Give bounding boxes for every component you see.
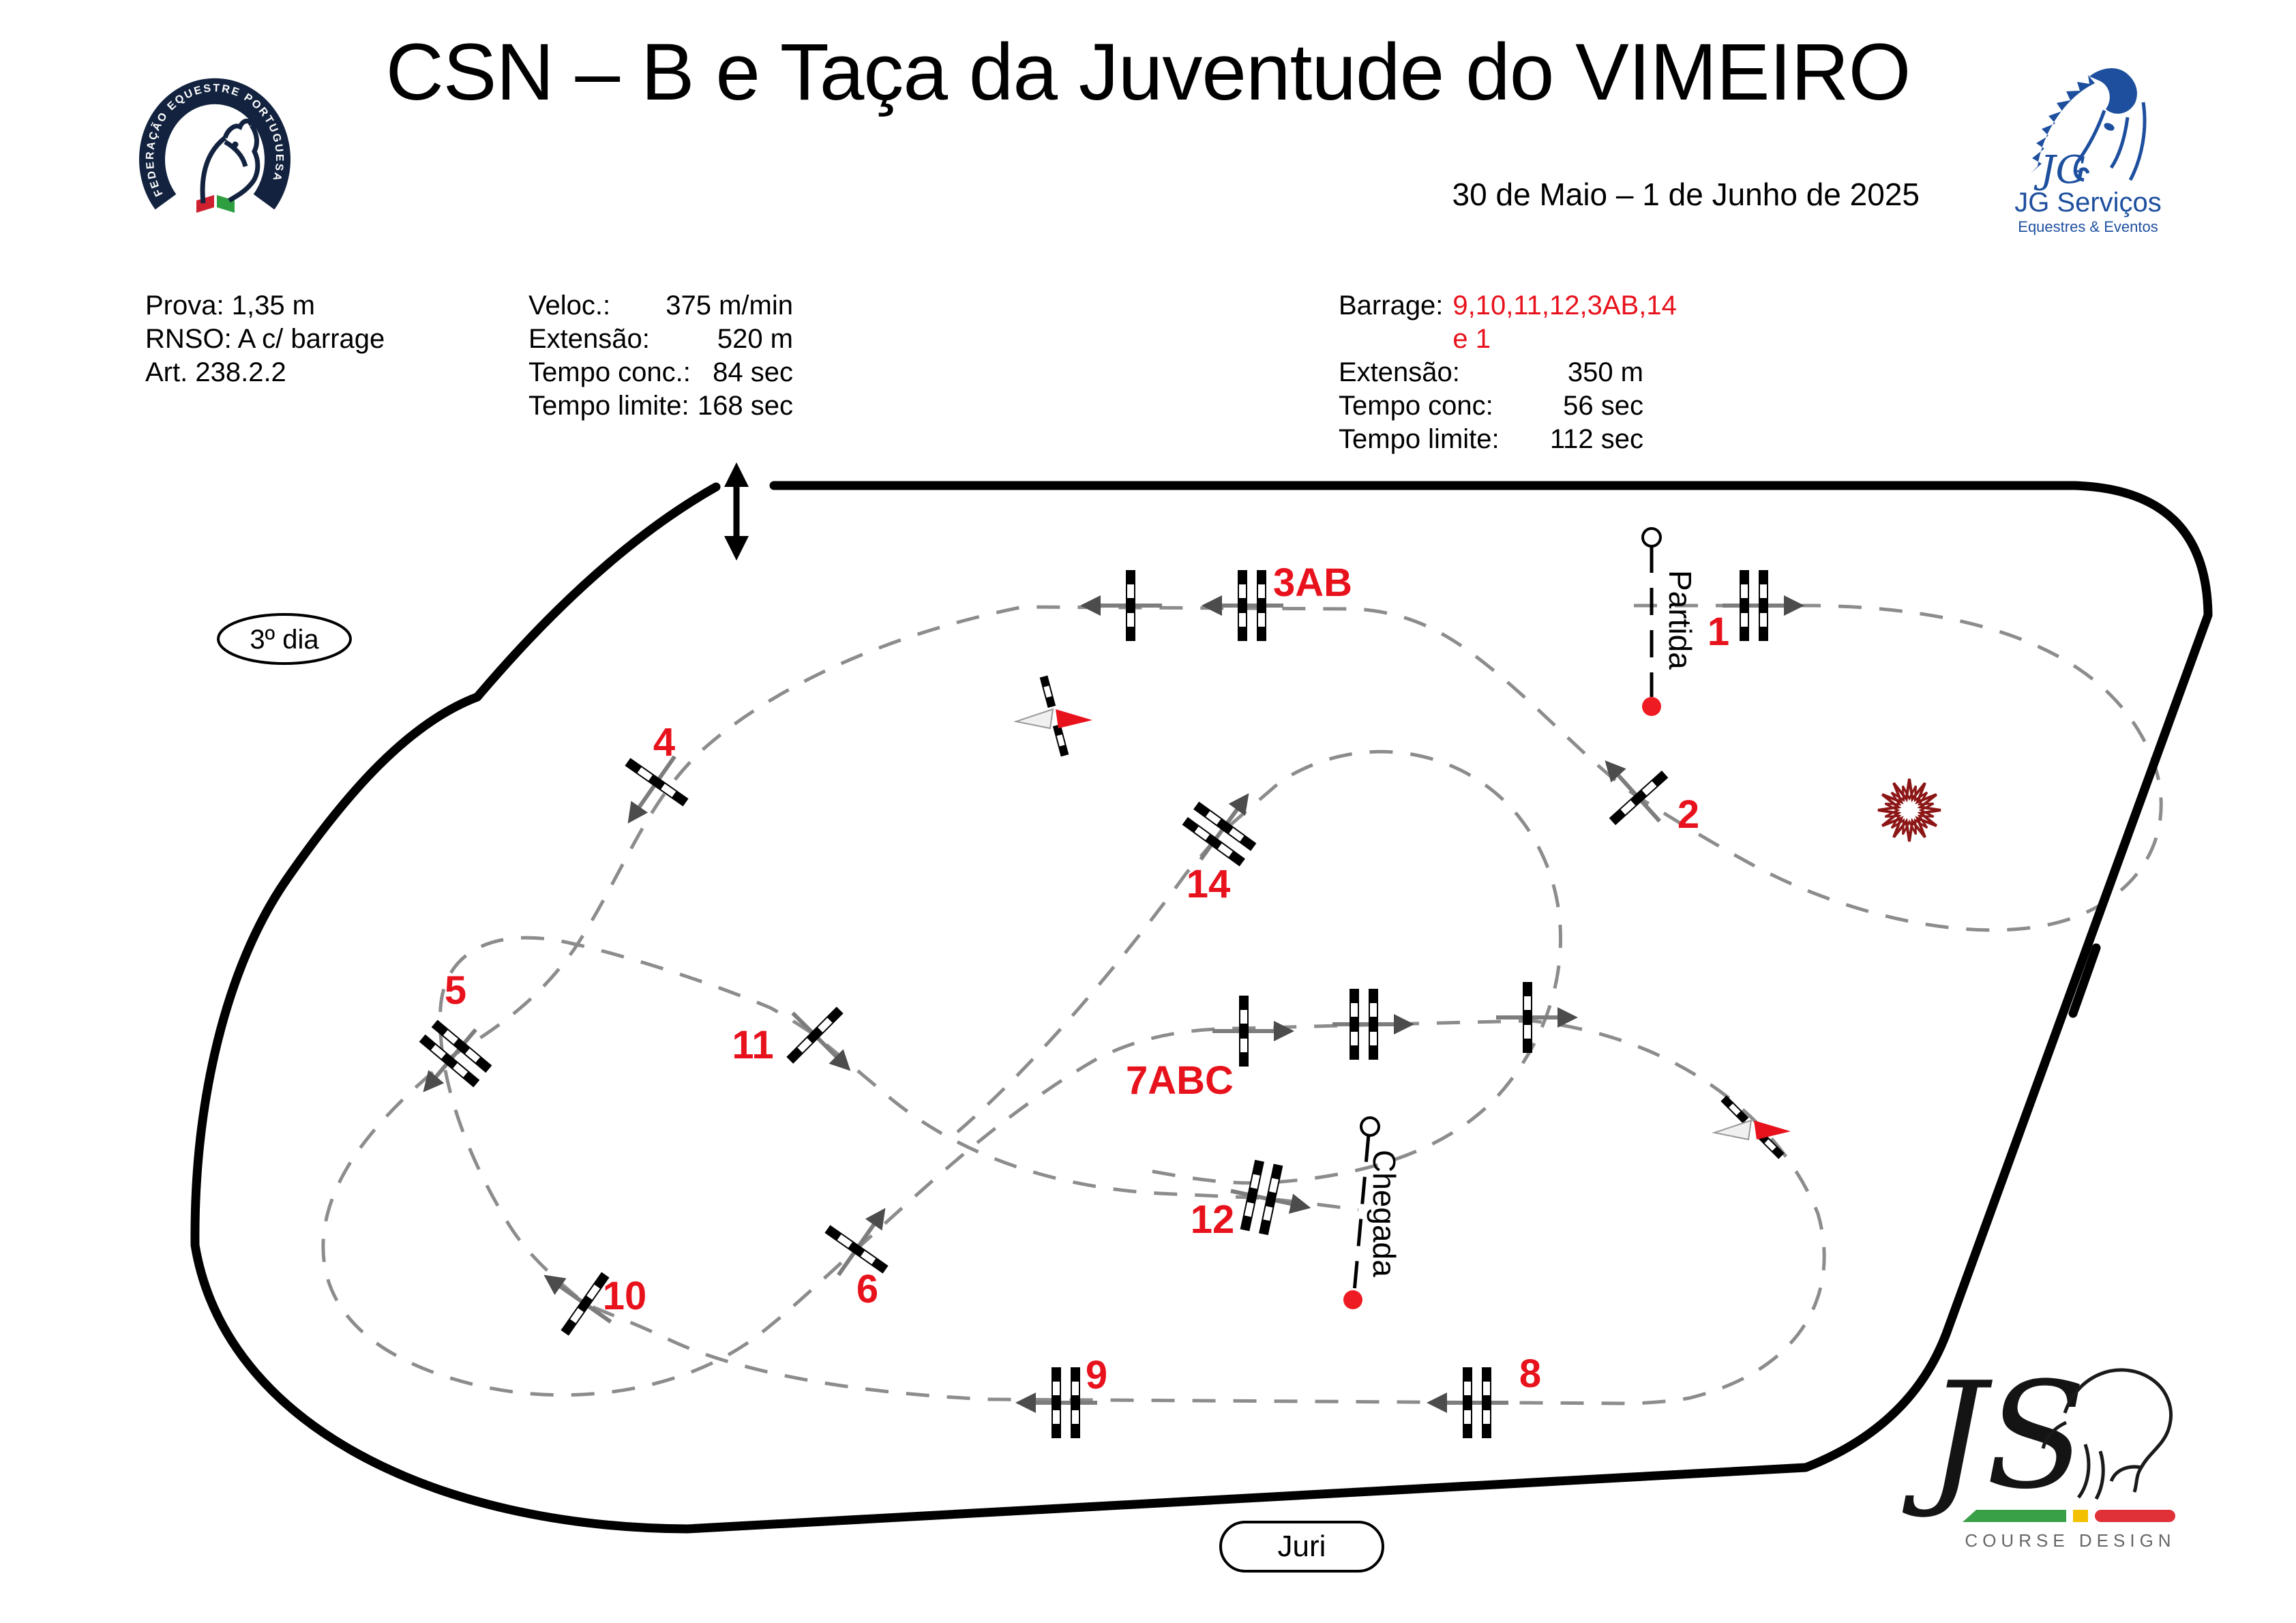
jg-horse-forelock [2089,68,2137,114]
start-flag-dot [1642,697,1661,716]
jump-arrowhead-icon [1394,1014,1414,1034]
js-coursedesign-logo: JS COURSE DESIGN [1902,1350,2176,1551]
js-caption: COURSE DESIGN [1965,1530,2175,1551]
jump-bar [1257,570,1266,641]
day-label: 3º dia [250,625,319,655]
jump-bar [1193,801,1256,850]
fep-red-chevron [196,195,214,213]
fep-horse-eye [233,142,239,148]
jump-arrowhead-icon [1202,595,1222,616]
jump-number-label: 3AB [1273,561,1352,605]
fep-horse-head-icon [203,121,258,203]
course-route-path [957,751,1560,1183]
start-label: Partida [1663,570,1698,670]
jump-bar [1523,982,1532,1053]
jump-arrowhead-icon [1784,595,1804,616]
start-flag-circle [1643,528,1660,546]
jump-number-label: 2 [1678,792,1699,837]
jump-11 [768,988,876,1096]
jg-tagline: Equestres & Eventos [2018,218,2158,235]
jg-name: JG Serviços [2014,188,2162,218]
jg-horse-eye [2103,121,2116,132]
jump-bar [625,758,688,806]
jump-number-label: 11 [732,1023,773,1067]
jump-arrowhead-icon [1427,1393,1447,1413]
jump-bar [1071,1367,1080,1438]
jump-number-label: 14 [1187,862,1231,906]
jg-monogram: JG [2033,148,2086,192]
course-map: FEDERAÇÃO EQUESTRE PORTUGUESA [0,0,2296,1623]
jump-number-label: 10 [603,1274,647,1318]
jump-number-label: 9 [1086,1353,1107,1397]
jump-number-label: 6 [856,1267,878,1311]
flag-marker-icon [1699,1076,1804,1182]
jg-logo: JG JG Serviços Equestres & Eventos [2014,68,2162,235]
jump-3A [1080,570,1162,641]
jump-bar [1759,570,1768,641]
decoration-star-icon [1878,779,1941,842]
jump-arrowhead-icon [1080,595,1101,616]
jump-bar [1238,570,1247,641]
jump-bar [1126,570,1135,641]
jump-number-label: 8 [1519,1352,1541,1396]
jump-bar [1609,771,1669,825]
finish-label: Chegada [1367,1150,1402,1277]
jump-2 [1579,736,1686,845]
jump-8 [1427,1367,1508,1438]
jump-number-label: 4 [653,720,675,764]
day-badge: 3º dia [218,614,351,664]
jump-7B [1332,989,1414,1060]
jump-arrowhead-icon [1289,1193,1313,1218]
arena-boundary [195,486,2208,1529]
js-green-bar [1963,1510,2066,1522]
jump-arrowhead-icon [865,1202,894,1231]
jump-7A [1212,996,1294,1067]
js-red-bar [2095,1510,2175,1522]
course-plan-page: CSN – B e Taça da Juventude do VIMEIRO 3… [0,0,2296,1623]
jump-number-label: 7ABC [1126,1058,1234,1103]
jump-arrowhead-icon [1015,1393,1036,1413]
jump-7C [1496,982,1578,1053]
jump-bar [1182,817,1245,866]
north-arrow-icon [724,462,749,561]
js-yellow-bar [2073,1510,2088,1522]
jump-bar [824,1225,888,1273]
jump-number-label: 1 [1708,610,1729,654]
fep-logo: FEDERAÇÃO EQUESTRE PORTUGUESA [145,83,285,213]
jump-bar [1052,1367,1061,1438]
jump-3B [1202,570,1283,641]
jump-1 [1723,570,1804,641]
jump-arrowhead-icon [538,1266,567,1295]
start-line: Partida [1642,528,1698,716]
jump-bar [1350,989,1359,1060]
jump-number-label: 5 [445,968,466,1013]
finish-flag-circle [1361,1118,1379,1135]
jump-bar [1463,1367,1472,1438]
jump-bar [1369,989,1378,1060]
jump-arrowhead-icon [1274,1021,1294,1041]
jump-arrowhead-icon [1229,787,1257,816]
jury-box: Juri [1221,1522,1383,1571]
jump-4 [599,736,704,844]
jump-number-label: 12 [1191,1197,1235,1242]
jump-bar [1239,996,1249,1067]
jump-arrowhead-icon [619,801,648,829]
jury-label: Juri [1278,1530,1326,1563]
jump-12 [1223,1157,1318,1243]
finish-line: Chegada [1343,1118,1402,1309]
flag-marker-icon [1005,666,1103,766]
jump-bar [1740,570,1749,641]
jump-bar [1482,1367,1491,1438]
jump-5 [396,1007,503,1115]
finish-flag-dot [1343,1290,1362,1309]
